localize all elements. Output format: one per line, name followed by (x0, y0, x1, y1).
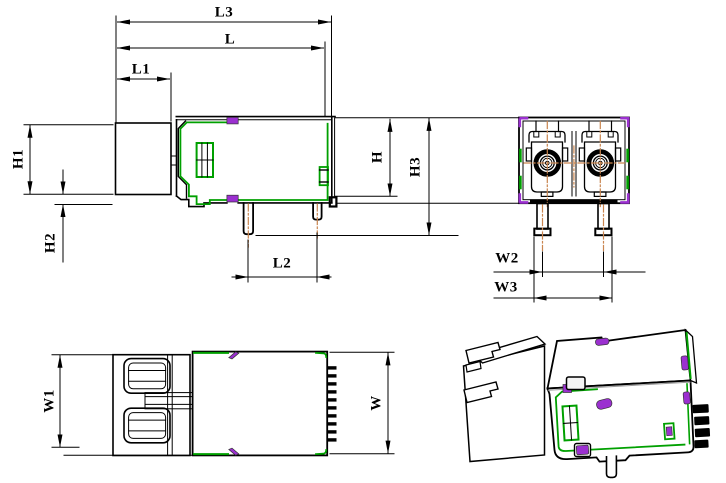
dim-label-L: L (225, 33, 236, 48)
dim-label-H1: H1 (12, 149, 27, 169)
top-emi-tab (227, 117, 238, 124)
dim-label-W3: W3 (494, 281, 518, 296)
housing-bottom-contour (177, 196, 227, 207)
dim-label-L3: L3 (215, 6, 234, 21)
housing-green-outline (180, 122, 226, 204)
dim-label-H3: H3 (409, 157, 424, 177)
iso-latch-window (562, 406, 578, 441)
dim-label-L2: L2 (273, 257, 292, 272)
iso-ridge-clip (567, 377, 586, 390)
dim-label-W: W (370, 395, 385, 411)
front-view (519, 118, 629, 251)
drawing-canvas: L3 L L1 L2 H1 H2 H H3 W1 W W2 W3 (0, 0, 726, 483)
top-housing (193, 352, 328, 456)
dim-label-H: H (371, 151, 386, 163)
dim-label-W2: W2 (495, 252, 519, 267)
top-view (113, 352, 337, 456)
isometric-view (464, 330, 711, 477)
lc-plug-body (116, 123, 172, 195)
dim-label-H2: H2 (44, 233, 59, 253)
dim-label-L1: L1 (132, 63, 151, 78)
plug-step (171, 156, 177, 165)
rear-tab (330, 197, 337, 206)
lc-port (526, 121, 567, 207)
dim-label-W1: W1 (43, 389, 58, 413)
bottom-emi-tab (227, 195, 238, 202)
contact-pins (328, 366, 337, 441)
iso-contact-pins (692, 404, 710, 448)
side-view (116, 117, 337, 247)
iso-mount-pin (607, 456, 617, 477)
engineering-drawing (0, 0, 726, 483)
base-plate (530, 199, 618, 202)
emi-tab-mark (229, 352, 239, 359)
